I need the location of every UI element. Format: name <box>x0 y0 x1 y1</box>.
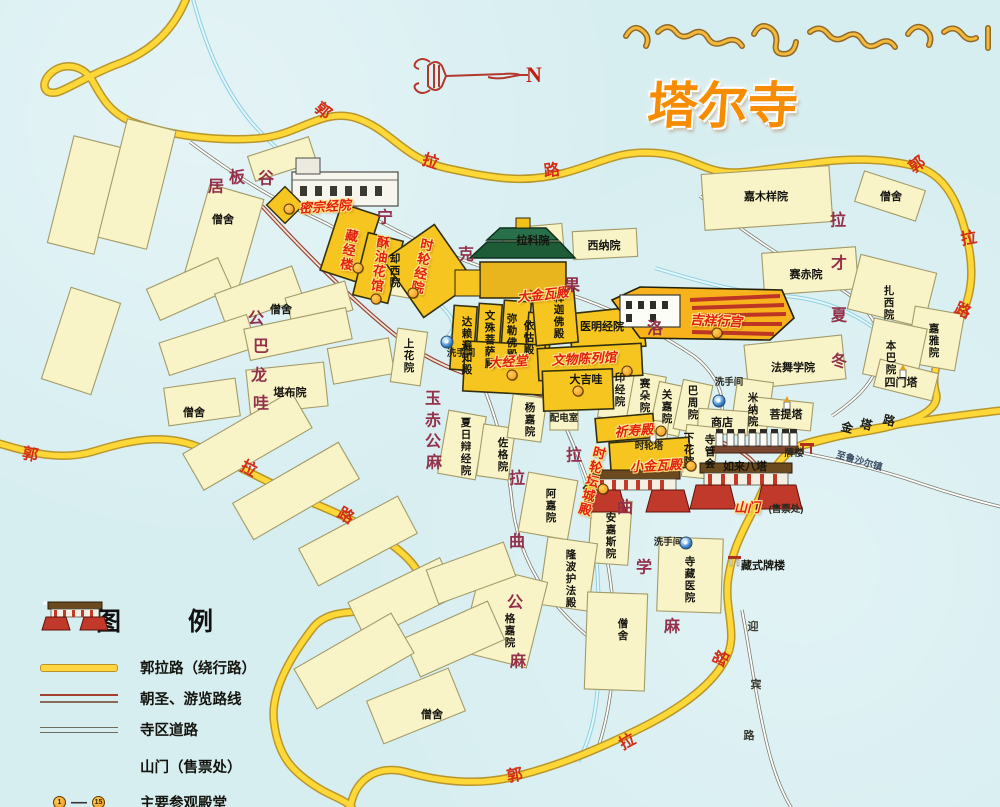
temple-road-swatch <box>40 727 118 733</box>
hall-number-badge <box>598 484 609 495</box>
label-ying: 迎 <box>748 622 759 634</box>
hall-number-badge <box>656 426 667 437</box>
label-longbo-hall: 隆波护法殿 <box>564 549 575 609</box>
area-cai: 才 <box>831 257 847 274</box>
label-anjiasi-court: 安嘉斯院 <box>604 512 615 560</box>
label-fawu-academy: 法舞学院 <box>771 363 815 375</box>
kora-guo-bottom: 郭 <box>506 767 525 786</box>
hall-number-badge-end: 15 <box>92 796 105 807</box>
label-tibetan-pailou: 藏式牌楼 <box>741 561 785 573</box>
label-lu-2: 路 <box>744 731 755 743</box>
hall-number-badge <box>686 461 697 472</box>
area-gong-2: 公 <box>425 435 441 452</box>
legend-item-kora-road: 郭拉路（绕行路） <box>40 652 340 683</box>
area-gu: 谷 <box>258 172 274 189</box>
label-dajiwa: 大吉哇 <box>570 375 603 387</box>
label-gejia-court: 格嘉院 <box>503 613 514 649</box>
hall-number-badge <box>712 328 723 339</box>
label-sengshe-center: 僧舍 <box>616 618 627 642</box>
label-temple-hospital: 寺藏医院 <box>683 556 694 604</box>
label-saichi-court: 赛赤院 <box>790 270 823 282</box>
hall-number-range: 1 — 15 <box>53 794 105 807</box>
area-ma-3: 麻 <box>510 655 526 672</box>
label-shanghua-court: 上花院 <box>402 338 413 374</box>
label-toilet-1: 洗手间 <box>447 349 476 359</box>
label-qishou-hall: 祈寿殿 <box>614 424 654 441</box>
label-zuoge-court: 佐格院 <box>496 437 507 473</box>
area-dong: 冬 <box>831 355 847 372</box>
kumbum-monastery-map: 塔尔寺 N 图 例 郭拉路（绕行路） 朝圣、游览路线 寺区道路 <box>0 0 1000 807</box>
label-xiaojinwa-hall: 小金瓦殿 <box>630 459 683 475</box>
area-chi: 赤 <box>425 414 441 431</box>
label-sengshe-ne: 僧舍 <box>880 192 902 204</box>
label-lake-court: 拉科院 <box>517 236 550 248</box>
label-puti-stupa: 菩提塔 <box>770 410 803 422</box>
label-sengshe-s: 僧舍 <box>421 710 443 722</box>
label-jiamuyang-court: 嘉木样院 <box>744 192 788 204</box>
label-jiaya-court: 嘉雅院 <box>927 323 938 359</box>
legend-item-temple-road: 寺区道路 <box>40 714 340 745</box>
north-label: N <box>526 62 542 88</box>
label-dalai-hall: 达赖遍知殿 <box>460 316 471 376</box>
label-simen-stupa: 四门塔 <box>885 378 918 390</box>
area-qu-1: 曲 <box>509 535 525 552</box>
kora-la-right: 拉 <box>960 230 979 249</box>
label-rulai-eight-stupas: 如来八塔 <box>723 462 767 474</box>
label-yiming-college: 医明经院 <box>580 322 624 334</box>
tibetan-script-title <box>614 14 1000 66</box>
area-ning: 宁 <box>377 211 393 228</box>
legend-label: 朝圣、游览路线 <box>140 688 242 709</box>
area-ju: 居 <box>208 180 224 197</box>
legend-item-main-halls: 1 — 15 主要参观殿堂 <box>40 787 340 807</box>
area-ma-2: 麻 <box>664 620 680 637</box>
area-ban: 板 <box>229 171 245 188</box>
area-guo: 果 <box>564 279 580 296</box>
range-dash: — <box>71 794 87 807</box>
label-temple-office: 寺管会 <box>703 434 714 470</box>
label-xiari-college: 夏日辩经院 <box>459 417 470 477</box>
label-yangjia-court: 杨嘉院 <box>523 402 534 438</box>
area-ba: 巴 <box>253 340 269 357</box>
label-shilun-stupa: 时轮塔 <box>635 442 664 452</box>
label-ajia-court: 阿嘉院 <box>544 488 555 524</box>
toilet-icon <box>680 537 693 550</box>
label-sengshe-w: 僧舍 <box>270 305 292 317</box>
label-shop: 商店 <box>711 418 733 430</box>
hall-number-badge <box>371 294 382 305</box>
label-benba-court: 本巴院 <box>884 340 895 376</box>
kora-road-swatch <box>40 664 118 672</box>
label-toilet-3: 洗手间 <box>654 538 683 548</box>
area-yu: 玉 <box>425 392 441 409</box>
hall-number-badge <box>622 366 633 377</box>
label-sengshe-nw: 僧舍 <box>212 215 234 227</box>
label-relics-museum: 文物陈列馆 <box>551 351 617 368</box>
area-qu-2: 曲 <box>617 501 633 518</box>
kora-lu-top: 路 <box>543 163 561 181</box>
legend-label: 寺区道路 <box>140 719 198 740</box>
area-la-2: 拉 <box>566 449 582 466</box>
area-gong-1: 公 <box>248 312 264 329</box>
hall-number-badge <box>573 386 584 397</box>
label-zhaxi-court: 扎西院 <box>882 285 893 321</box>
area-luo: 洛 <box>647 322 663 339</box>
map-title: 塔尔寺 <box>645 66 980 138</box>
area-long: 龙 <box>251 369 267 386</box>
toilet-icon <box>441 336 454 349</box>
toilet-icon <box>713 395 726 408</box>
label-shanmen: 山门 <box>734 502 760 516</box>
hall-number-badge <box>353 263 364 274</box>
legend-title: 图 例 <box>96 602 340 638</box>
label-sengshe-sw: 僧舍 <box>183 408 205 420</box>
label-bin: 宾 <box>751 680 762 692</box>
pilgrim-route-swatch <box>40 694 118 703</box>
gate-legend-icon <box>40 598 110 632</box>
legend-item-gate: 山门（售票处） <box>40 745 340 787</box>
hall-number-badge <box>408 288 419 299</box>
area-la-1: 拉 <box>509 472 525 489</box>
legend-item-pilgrim-route: 朝圣、游览路线 <box>40 683 340 714</box>
label-quexi-court: 却西院 <box>388 253 399 289</box>
legend-label: 主要参观殿堂 <box>140 792 227 807</box>
label-bazhou-court: 巴周院 <box>686 385 697 421</box>
area-la-3: 拉 <box>830 214 846 231</box>
label-guanjia-court: 关嘉院 <box>660 389 671 425</box>
area-ke: 克 <box>458 248 474 265</box>
label-dajingtang: 大经堂 <box>488 355 528 371</box>
label-ticket-office: (售票处) <box>769 505 804 515</box>
label-kanbu-court: 堪布院 <box>274 388 307 400</box>
label-pailou: 牌楼 <box>784 449 803 459</box>
legend: 图 例 郭拉路（绕行路） 朝圣、游览路线 寺区道路 山门（售票 <box>40 598 340 807</box>
label-power-room: 配电室 <box>550 414 579 424</box>
label-yihu-hall: 依怙殿 <box>522 320 533 356</box>
hall-number-badge <box>284 204 295 215</box>
area-wa: 哇 <box>253 397 269 414</box>
legend-label: 山门（售票处） <box>140 756 242 777</box>
label-xina-court: 西纳院 <box>588 241 621 253</box>
kora-guo-left: 郭 <box>20 446 39 466</box>
legend-label: 郭拉路（绕行路） <box>140 657 256 678</box>
area-xue: 学 <box>636 561 652 578</box>
area-ma-1: 麻 <box>426 456 442 473</box>
hall-number-badge <box>507 370 518 381</box>
hall-number-badge-start: 1 <box>53 796 66 807</box>
label-mina-court: 米纳院 <box>746 392 757 428</box>
label-toilet-2: 洗手间 <box>715 378 744 388</box>
area-gong-3: 公 <box>507 596 523 613</box>
label-saiduo-court: 赛朵院 <box>638 378 649 414</box>
label-yinjing-court: 印经院 <box>613 372 624 408</box>
area-xia: 夏 <box>831 309 847 326</box>
